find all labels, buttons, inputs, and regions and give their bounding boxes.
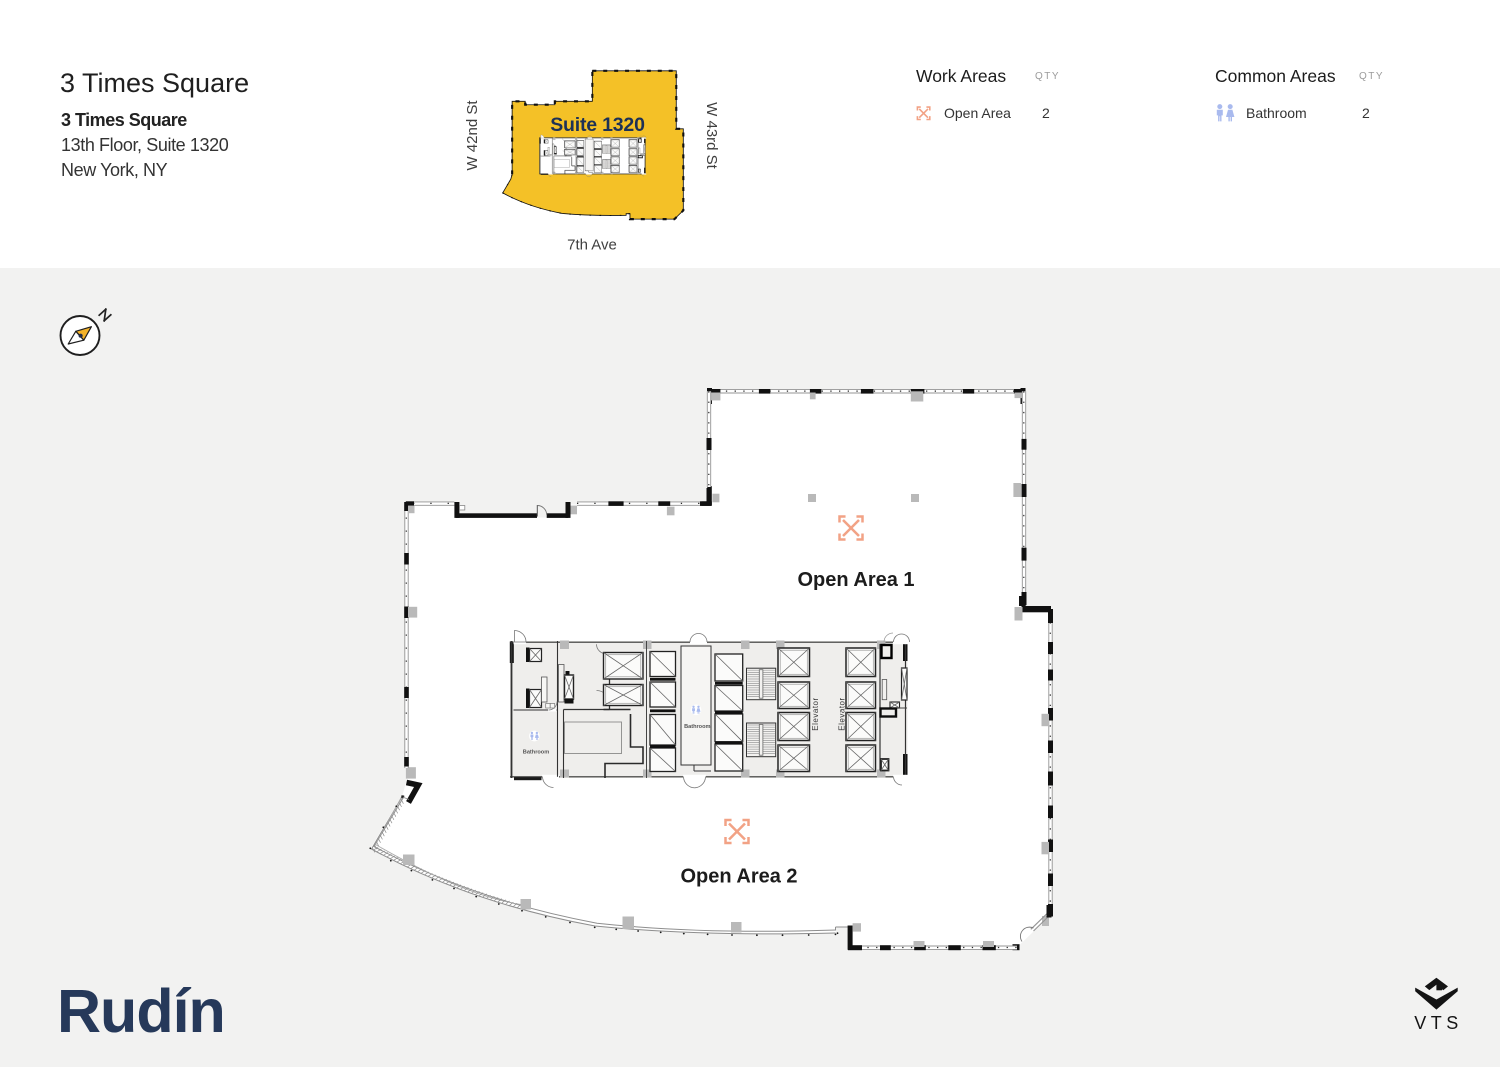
- svg-text:VTS: VTS: [1414, 1013, 1463, 1033]
- svg-text:W 42nd St: W 42nd St: [464, 100, 481, 171]
- svg-text:Open Area 2: Open Area 2: [680, 866, 797, 888]
- svg-text:Elevator: Elevator: [811, 697, 820, 730]
- svg-text:Suite 1320: Suite 1320: [550, 114, 645, 136]
- svg-text:Bathroom: Bathroom: [523, 750, 549, 756]
- svg-text:Elevator: Elevator: [838, 697, 847, 730]
- svg-text:7th Ave: 7th Ave: [567, 237, 617, 254]
- svg-text:Bathroom: Bathroom: [684, 724, 710, 730]
- svg-text:Open Area 1: Open Area 1: [797, 569, 914, 591]
- svg-text:W 43rd St: W 43rd St: [703, 102, 720, 170]
